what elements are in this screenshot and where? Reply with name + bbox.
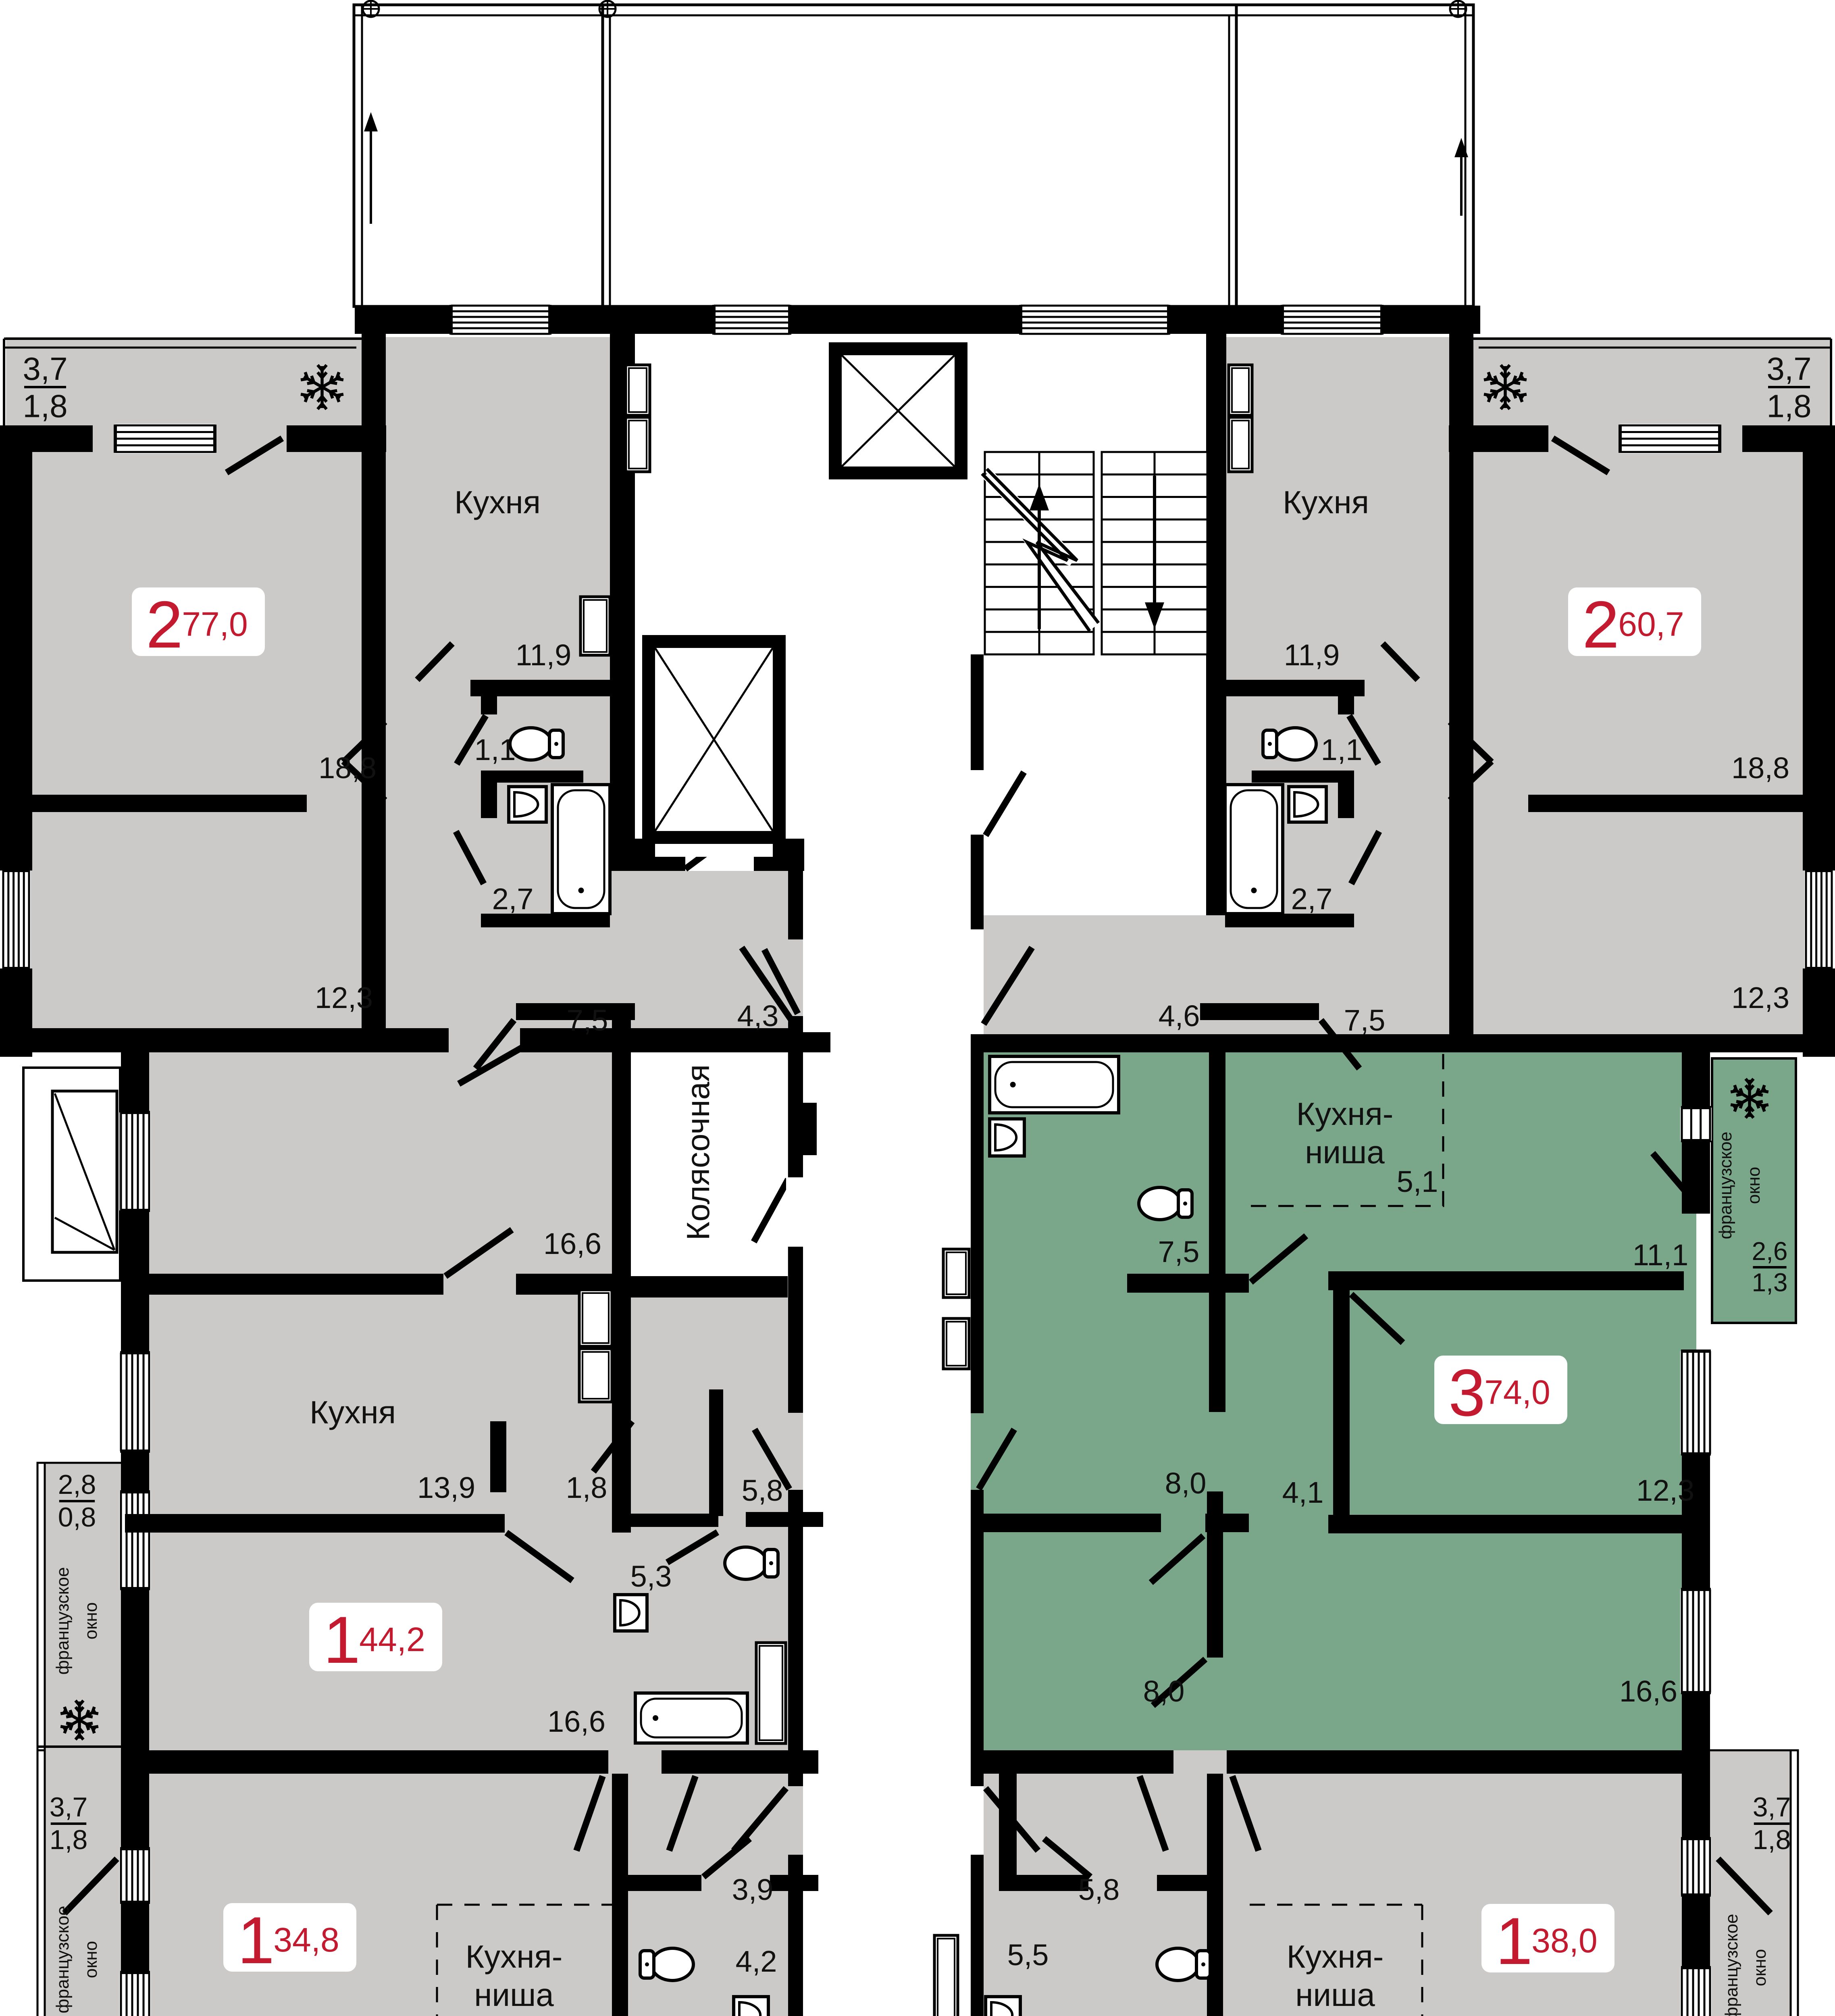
svg-text:французское: французское (1716, 1131, 1735, 1239)
svg-text:1,8: 1,8 (50, 1824, 88, 1855)
svg-text:1,8: 1,8 (23, 388, 67, 424)
svg-text:8,0: 8,0 (1165, 1466, 1207, 1500)
svg-text:Кухня-: Кухня- (1296, 1096, 1394, 1132)
svg-text:3,9: 3,9 (732, 1873, 774, 1906)
svg-text:13,9: 13,9 (417, 1471, 475, 1504)
svg-text:4,6: 4,6 (1159, 999, 1200, 1033)
svg-text:74,0: 74,0 (1484, 1373, 1550, 1411)
svg-text:французское: французское (53, 1906, 73, 2013)
svg-text:Кухня-: Кухня- (1287, 1939, 1384, 1974)
svg-text:ниша: ниша (1305, 1134, 1385, 1170)
svg-text:5,8: 5,8 (1078, 1873, 1120, 1906)
svg-text:7,5: 7,5 (1158, 1235, 1200, 1268)
svg-text:ниша: ниша (1295, 1977, 1375, 2013)
svg-text:2,7: 2,7 (1291, 882, 1333, 916)
svg-text:3: 3 (1448, 1356, 1485, 1430)
svg-text:12,3: 12,3 (1731, 981, 1789, 1014)
svg-text:2,6: 2,6 (1752, 1237, 1788, 1266)
svg-text:4,2: 4,2 (736, 1945, 777, 1978)
svg-text:3,7: 3,7 (23, 351, 67, 387)
svg-text:3,7: 3,7 (1753, 1792, 1791, 1822)
svg-text:4,1: 4,1 (1282, 1476, 1324, 1509)
svg-text:38,0: 38,0 (1531, 1922, 1598, 1960)
svg-text:1: 1 (237, 1903, 275, 1977)
svg-text:60,7: 60,7 (1618, 605, 1684, 643)
svg-text:2,7: 2,7 (492, 882, 534, 916)
svg-text:34,8: 34,8 (273, 1921, 339, 1959)
svg-text:Кухня: Кухня (310, 1394, 396, 1430)
svg-text:1: 1 (323, 1603, 360, 1677)
svg-text:Кухня: Кухня (454, 484, 541, 520)
svg-text:12,3: 12,3 (315, 981, 373, 1014)
svg-text:окно: окно (1744, 1167, 1764, 1204)
svg-text:5,3: 5,3 (630, 1560, 672, 1593)
svg-text:1,8: 1,8 (566, 1471, 608, 1504)
svg-text:1,8: 1,8 (1766, 388, 1811, 424)
svg-text:11,1: 11,1 (1633, 1238, 1689, 1272)
svg-text:1: 1 (1496, 1904, 1533, 1978)
svg-text:44,2: 44,2 (359, 1620, 425, 1658)
svg-text:11,9: 11,9 (516, 638, 572, 672)
svg-text:5,8: 5,8 (742, 1474, 783, 1507)
svg-text:ниша: ниша (474, 1977, 554, 2013)
svg-text:5,1: 5,1 (1397, 1165, 1438, 1198)
svg-text:3,7: 3,7 (1766, 351, 1811, 387)
svg-text:16,6: 16,6 (1619, 1674, 1677, 1708)
svg-text:1,1: 1,1 (474, 733, 516, 766)
svg-text:французское: французское (1722, 1914, 1741, 2016)
svg-text:окно: окно (81, 1602, 101, 1640)
svg-text:16,6: 16,6 (543, 1227, 601, 1260)
svg-text:0,8: 0,8 (58, 1502, 96, 1533)
svg-text:1,8: 1,8 (1753, 1824, 1791, 1855)
svg-text:77,0: 77,0 (182, 605, 248, 643)
svg-text:4,3: 4,3 (737, 999, 779, 1033)
svg-text:3,7: 3,7 (50, 1792, 88, 1822)
svg-text:Кухня-: Кухня- (466, 1939, 563, 1974)
svg-text:18,8: 18,8 (318, 751, 377, 785)
svg-text:7,5: 7,5 (1344, 1004, 1386, 1037)
svg-text:16,6: 16,6 (547, 1705, 605, 1738)
svg-text:5,5: 5,5 (1007, 1938, 1049, 1972)
svg-text:окно: окно (81, 1941, 101, 1979)
svg-text:французское: французское (53, 1567, 73, 1674)
svg-text:8,0: 8,0 (1143, 1674, 1185, 1708)
svg-text:1,1: 1,1 (1321, 733, 1363, 766)
svg-text:Кухня: Кухня (1283, 484, 1369, 520)
svg-text:11,9: 11,9 (1284, 638, 1340, 672)
svg-text:Колясочная: Колясочная (680, 1064, 716, 1241)
svg-text:2: 2 (1582, 587, 1619, 662)
svg-text:окно: окно (1750, 1949, 1770, 1987)
svg-text:1,3: 1,3 (1752, 1268, 1788, 1297)
svg-text:2: 2 (146, 587, 183, 662)
svg-text:12,3: 12,3 (1636, 1474, 1694, 1507)
svg-text:7,5: 7,5 (567, 1004, 608, 1037)
svg-text:2,8: 2,8 (58, 1469, 96, 1500)
svg-text:18,8: 18,8 (1731, 751, 1789, 785)
